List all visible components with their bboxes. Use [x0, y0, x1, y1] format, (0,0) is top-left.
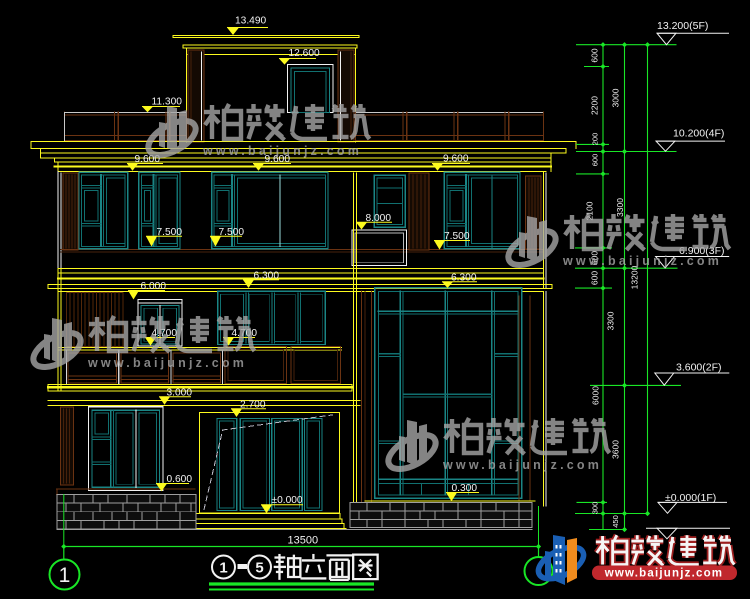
svg-text:13.200(5F): 13.200(5F)	[657, 20, 708, 32]
svg-text:3000: 3000	[611, 88, 621, 107]
svg-text:12.600: 12.600	[289, 48, 320, 59]
svg-text:600: 600	[590, 271, 600, 285]
svg-text:13200: 13200	[630, 265, 640, 289]
svg-text:6000: 6000	[591, 386, 601, 405]
svg-text:1: 1	[59, 564, 71, 587]
svg-text:1: 1	[219, 560, 227, 577]
svg-text:200: 200	[591, 133, 600, 146]
svg-text:600: 600	[591, 154, 600, 167]
svg-text:www.baijunjz.com: www.baijunjz.com	[87, 356, 247, 370]
svg-text:11.300: 11.300	[152, 97, 183, 108]
svg-text:450: 450	[611, 515, 620, 528]
svg-text:www.baijunjz.com: www.baijunjz.com	[562, 254, 722, 268]
svg-text:13500: 13500	[288, 535, 319, 547]
svg-text:www.baijunjz.com: www.baijunjz.com	[442, 458, 602, 472]
svg-text:3300: 3300	[606, 311, 616, 330]
svg-text:3300: 3300	[615, 198, 625, 217]
svg-text:9.600: 9.600	[443, 154, 469, 165]
svg-text:13.490: 13.490	[235, 16, 266, 27]
svg-text:10.200(4F): 10.200(4F)	[673, 128, 724, 140]
svg-text:www.baijunjz.com: www.baijunjz.com	[202, 144, 362, 158]
svg-text:3600: 3600	[611, 440, 621, 459]
svg-text:2200: 2200	[590, 96, 600, 115]
svg-text:300: 300	[591, 502, 600, 515]
svg-text:3.600(2F): 3.600(2F)	[676, 362, 722, 374]
svg-text:600: 600	[590, 48, 600, 62]
svg-text:5: 5	[255, 560, 263, 577]
svg-text:www.baijunjz.com: www.baijunjz.com	[604, 568, 723, 580]
